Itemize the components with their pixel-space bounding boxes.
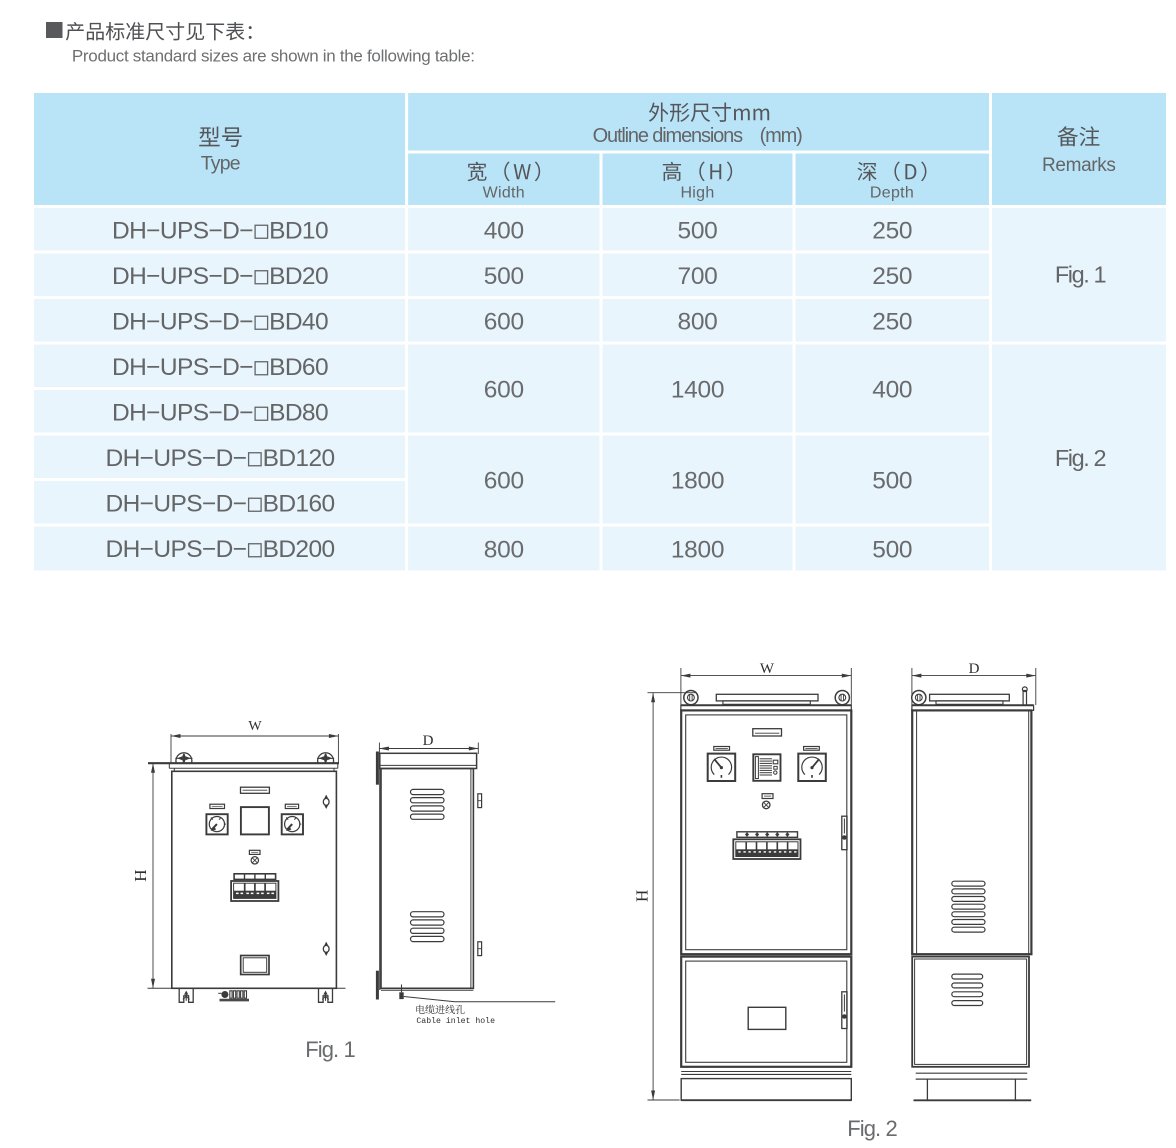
svg-text:1800: 1800: [671, 468, 724, 495]
svg-text:500: 500: [872, 468, 912, 495]
svg-text:DH−UPS−D−: DH−UPS−D−: [106, 536, 247, 563]
svg-text:800: 800: [484, 537, 524, 564]
svg-text:BD160: BD160: [263, 490, 335, 517]
svg-text:Fig. 2: Fig. 2: [1055, 445, 1106, 471]
svg-text:700: 700: [678, 263, 718, 290]
svg-text:Product standard sizes are sho: Product standard sizes are shown in the …: [72, 47, 475, 66]
svg-text:Type: Type: [201, 152, 240, 174]
svg-text:W: W: [760, 661, 775, 677]
svg-text:1800: 1800: [671, 537, 724, 564]
svg-text:Width: Width: [483, 185, 525, 202]
svg-text:500: 500: [678, 217, 718, 244]
svg-text:BD40: BD40: [269, 308, 328, 335]
svg-text:Cable inlet hole: Cable inlet hole: [416, 1016, 495, 1026]
svg-text:DH−UPS−D−: DH−UPS−D−: [106, 445, 247, 472]
svg-text:Depth: Depth: [870, 185, 914, 202]
svg-text:High: High: [680, 185, 714, 202]
svg-text:Outline dimensions (mm): Outline dimensions (mm): [593, 125, 803, 147]
svg-text:DH−UPS−D−: DH−UPS−D−: [112, 399, 253, 426]
svg-text:BD20: BD20: [269, 263, 328, 290]
svg-text:Fig. 1: Fig. 1: [1055, 261, 1106, 287]
svg-text:400: 400: [484, 217, 524, 244]
svg-text:400: 400: [872, 377, 912, 404]
svg-text:DH−UPS−D−: DH−UPS−D−: [112, 263, 253, 290]
svg-text:W: W: [248, 719, 262, 734]
svg-text:800: 800: [678, 308, 718, 335]
svg-text:BD80: BD80: [269, 399, 328, 426]
svg-text:H: H: [131, 869, 150, 881]
svg-text:250: 250: [872, 217, 912, 244]
svg-text:500: 500: [484, 263, 524, 290]
svg-text:250: 250: [872, 308, 912, 335]
svg-text:500: 500: [872, 537, 912, 564]
svg-text:H: H: [633, 890, 652, 902]
svg-text:600: 600: [484, 377, 524, 404]
svg-text:BD10: BD10: [269, 217, 328, 244]
svg-text:Remarks: Remarks: [1042, 155, 1116, 176]
svg-text:250: 250: [872, 263, 912, 290]
svg-text:DH−UPS−D−: DH−UPS−D−: [112, 354, 253, 381]
svg-text:1400: 1400: [671, 377, 724, 404]
svg-text:D: D: [423, 733, 434, 749]
svg-text:DH−UPS−D−: DH−UPS−D−: [112, 217, 253, 244]
svg-text:Fig. 2: Fig. 2: [847, 1116, 897, 1141]
svg-text:BD120: BD120: [263, 445, 335, 472]
svg-text:BD200: BD200: [263, 536, 335, 563]
svg-text:600: 600: [484, 468, 524, 495]
svg-text:D: D: [969, 661, 980, 677]
svg-text:DH−UPS−D−: DH−UPS−D−: [112, 308, 253, 335]
svg-text:Fig. 1: Fig. 1: [305, 1037, 355, 1062]
svg-text:BD60: BD60: [269, 354, 328, 381]
svg-text:600: 600: [484, 308, 524, 335]
svg-text:DH−UPS−D−: DH−UPS−D−: [106, 490, 247, 517]
